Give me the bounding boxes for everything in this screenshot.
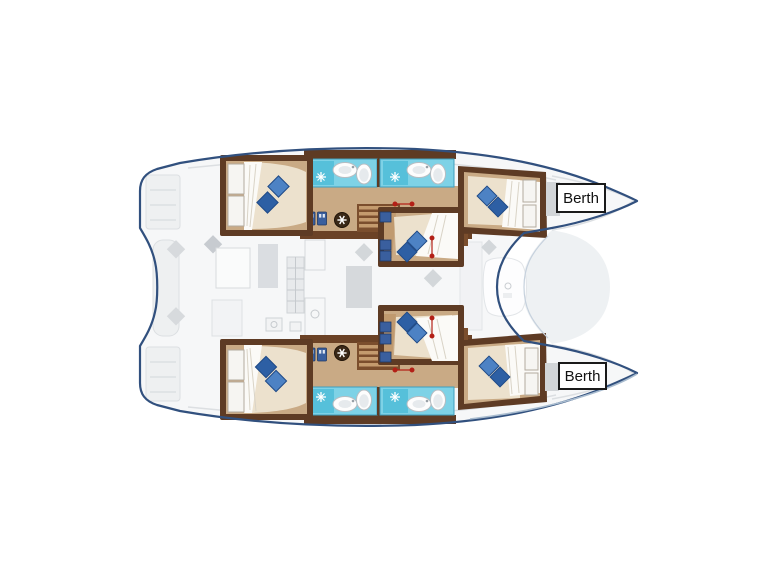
sink-icon: [333, 397, 357, 412]
sink-icon: [333, 163, 357, 178]
toilet-icon: [431, 390, 446, 410]
berth-label-top-text: Berth: [563, 190, 599, 207]
berth-label-bottom: Berth: [558, 362, 607, 390]
lower-mid-cabin: [378, 305, 464, 365]
upper-mid-cabin: [378, 207, 464, 267]
catamaran-floor-plan-page: { "labels": { "berth_top": "Berth", "ber…: [0, 0, 768, 576]
berth-label-top: Berth: [556, 183, 606, 213]
bow-step-pad-bottom: [545, 363, 559, 391]
sink-icon: [407, 397, 431, 412]
toilet-icon: [431, 164, 446, 184]
starboard-aft-cabin: [220, 339, 313, 420]
toilet-icon: [357, 164, 372, 184]
floor-plan-canvas: [0, 0, 768, 576]
port-bathroom: [304, 150, 456, 187]
port-aft-cabin: [220, 155, 313, 236]
toilet-icon: [357, 390, 372, 410]
ceiling-fan-icon-starboard: [335, 346, 350, 361]
port-forward-cabin: [452, 166, 547, 246]
starboard-forward-cabin: [452, 328, 547, 410]
sink-icon: [407, 163, 431, 178]
ceiling-fan-icon-port: [335, 213, 350, 228]
starboard-bathroom: [304, 387, 456, 424]
berth-label-bottom-text: Berth: [565, 368, 601, 385]
foredeck-trampoline: [522, 230, 610, 344]
